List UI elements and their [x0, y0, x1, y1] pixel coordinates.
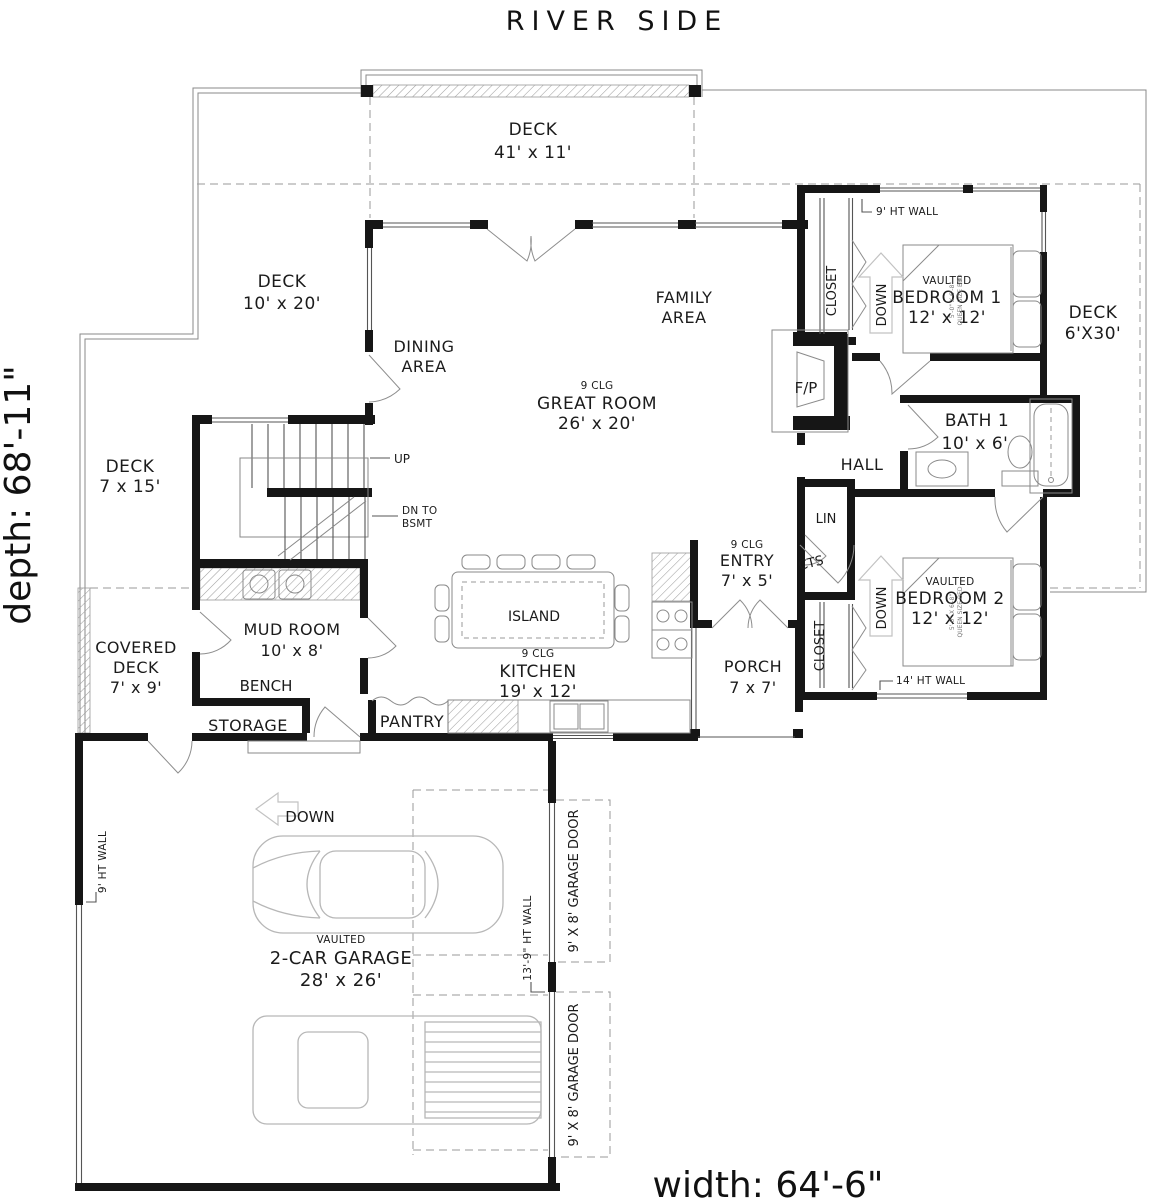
kitchen-ceiling: 9 CLG	[522, 648, 555, 660]
range	[652, 602, 692, 658]
deck-river-name: DECK	[509, 120, 558, 140]
garage-name: 2-CAR GARAGE	[270, 948, 412, 969]
garage-landing	[248, 741, 360, 753]
down-bedroom1-label: DOWN	[875, 284, 890, 327]
plan-depth-dimension: depth: 68'-11"	[0, 365, 39, 624]
floor-plan-page: RIVER SIDE DECK 41' x 11' DECK 10' x 20'…	[0, 0, 1156, 1200]
closet1-label: CLOSET	[825, 266, 840, 317]
wall-height-14ft: 14' HT WALL	[896, 675, 965, 687]
storage-label: STORAGE	[208, 716, 288, 735]
family-label-1: FAMILY	[656, 288, 713, 307]
deck-side-dims: 7 x 15'	[99, 477, 161, 497]
up-label: UP	[394, 452, 410, 466]
linen-closet-label: LIN	[816, 512, 837, 527]
dn-to-bsmt-1: DN TO	[402, 505, 437, 517]
bedroom1-name: BEDROOM 1	[892, 288, 1001, 308]
fireplace-label: F/P	[795, 379, 818, 397]
dining-label-2: AREA	[401, 357, 446, 376]
bath1-dims: 10' x 6'	[942, 434, 1009, 454]
bed2-type-note: QUEEN SIZE BED	[957, 586, 964, 637]
hall-label: HALL	[841, 455, 884, 474]
bedroom1-vaulted: VAULTED	[922, 275, 971, 287]
entry-dims: 7' x 5'	[721, 571, 773, 590]
kitchen-island	[435, 555, 629, 648]
pantry-label: PANTRY	[380, 712, 444, 731]
deck-left-name: DECK	[258, 272, 307, 292]
floor-plan-canvas: RIVER SIDE DECK 41' x 11' DECK 10' x 20'…	[0, 0, 1156, 1200]
kitchen-dims: 19' x 12'	[499, 682, 577, 702]
deck-right-dims: 6'X30'	[1065, 324, 1121, 344]
deck-side-name: DECK	[106, 457, 155, 477]
island-label: ISLAND	[508, 609, 560, 625]
entry-ceiling: 9 CLG	[731, 539, 764, 551]
bed1-size-note: 5'-0" X 6'-8"	[949, 282, 956, 319]
down-garage-label: DOWN	[285, 808, 334, 826]
car	[253, 836, 503, 933]
wall-height-bedroom1: 9' HT WALL	[876, 206, 938, 218]
bedroom2-vaulted: VAULTED	[925, 576, 974, 588]
covered-deck-1: COVERED	[95, 638, 177, 657]
bed1-type-note: QUEEN SIZE BED	[957, 274, 964, 325]
deck-right-name: DECK	[1069, 303, 1118, 323]
mud-room-name: MUD ROOM	[243, 620, 340, 639]
wall-height-garage: 9' HT WALL	[97, 831, 109, 893]
closet2-label: CLOSET	[813, 621, 828, 672]
covered-deck-dims: 7' x 9'	[110, 678, 162, 697]
dn-to-bsmt-2: BSMT	[402, 518, 433, 530]
deck-river-dims: 41' x 11'	[494, 143, 572, 163]
site-orientation-label: RIVER SIDE	[506, 6, 729, 37]
garage-door1-label: 9' X 8' GARAGE DOOR	[567, 809, 582, 952]
great-room-name: GREAT ROOM	[537, 394, 657, 414]
great-room-dims: 26' x 20'	[558, 414, 636, 434]
labels: RIVER SIDE DECK 41' x 11' DECK 10' x 20'…	[0, 6, 1121, 1200]
dining-label-1: DINING	[393, 337, 454, 356]
truck	[253, 1016, 541, 1124]
entry-name: ENTRY	[720, 551, 774, 570]
plan-width-dimension: width: 64'-6"	[653, 1165, 884, 1200]
bath1-name: BATH 1	[945, 411, 1009, 431]
deck-left-dims: 10' x 20'	[243, 294, 321, 314]
garage-vaulted: VAULTED	[316, 934, 365, 946]
bedroom1-dims: 12' x 12'	[908, 308, 986, 328]
porch-name: PORCH	[724, 657, 782, 676]
kitchen-name: KITCHEN	[499, 662, 576, 682]
mud-room-dims: 10' x 8'	[261, 641, 324, 660]
bench-label: BENCH	[240, 677, 293, 695]
garage-door2-label: 9' X 8' GARAGE DOOR	[567, 1003, 582, 1146]
covered-deck-2: DECK	[113, 658, 159, 677]
bed2-size-note: 5'-0" X 6'-8"	[949, 594, 956, 631]
down-bedroom2-label: DOWN	[875, 587, 890, 630]
wall-height-13-9: 13'-9" HT WALL	[522, 895, 534, 980]
garage-dims: 28' x 26'	[300, 970, 382, 991]
great-room-ceiling: 9 CLG	[581, 380, 614, 392]
porch-dims: 7 x 7'	[729, 678, 776, 697]
family-label-2: AREA	[661, 308, 706, 327]
